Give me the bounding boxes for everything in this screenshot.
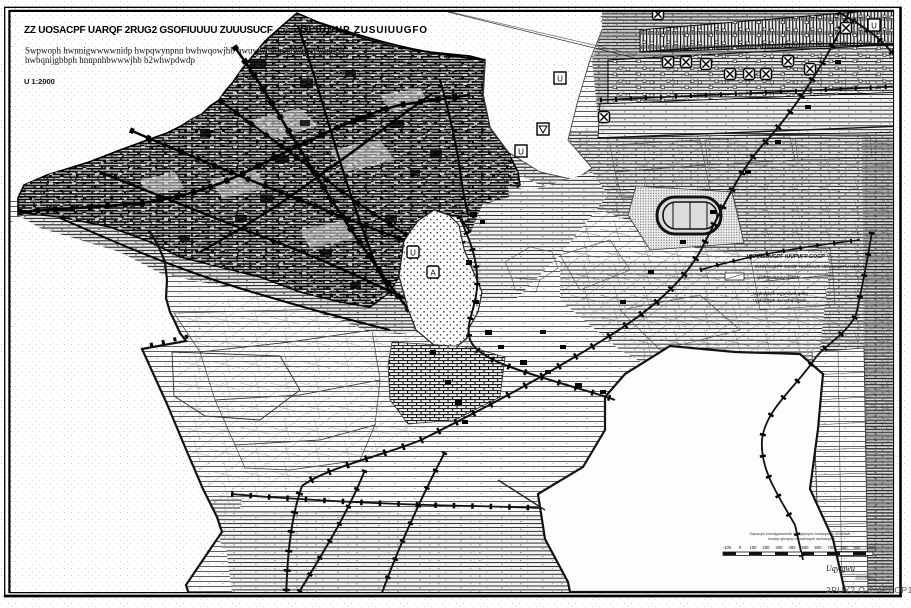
- svg-text:200: 200: [763, 545, 771, 550]
- svg-text:U: U: [518, 148, 524, 157]
- svg-text:800: 800: [841, 545, 849, 550]
- svg-text:900: 900: [854, 545, 862, 550]
- svg-text:Ujqbqbbph wywnqwb qobp: Ujqbqbbph wywnqwb qobp: [753, 291, 808, 296]
- svg-text:U 1:2000: U 1:2000: [24, 77, 55, 86]
- svg-text:-100: -100: [723, 545, 732, 550]
- svg-text:A: A: [430, 269, 436, 278]
- svg-text:Ujqbqbbph dwnwbqnipjnib: Ujqbqbbph dwnwbqnipjnib: [753, 298, 807, 303]
- svg-text:2PUY2 O-2.4PEOP1: 2PUY2 O-2.4PEOP1: [826, 585, 911, 595]
- svg-text:UUPQUIUUU GOGP: UUPQUIUUU GOGP: [757, 275, 800, 280]
- svg-text:hwdwp qlhwynp hwwwhwqoh dw2wwp: hwdwp qlhwynp hwwwhwqoh dw2wwpp: [768, 537, 832, 541]
- svg-text:GLIUUNP ZUSUIUUGFO: GLIUUNP ZUSUIUUGFO: [300, 25, 427, 36]
- svg-text:UNNNSUUGPF IUUPUFP GOGP: UNNNSUUGPF IUUPUFP GOGP: [747, 254, 825, 260]
- svg-text:1000: 1000: [866, 545, 876, 550]
- svg-text:UU 2008: UU 2008: [856, 575, 870, 579]
- svg-text:U: U: [557, 75, 563, 84]
- svg-text:Swpwoph hwnnigwwwnidb hwpqwynp: Swpwoph hwnnigwwwnidb hwpqwynpnn bwhwqob…: [750, 532, 851, 536]
- svg-text:100: 100: [750, 545, 758, 550]
- svg-text:Uqytgwu: Uqytgwu: [826, 564, 855, 573]
- svg-text:INNNGUGPF GOGP NINNUUO UGIUUUS: INNNGUGPF GOGP NINNUUO UGIUUUSFU U2UUU: [755, 264, 866, 269]
- svg-text:500: 500: [802, 545, 810, 550]
- svg-text:Swpwoph hwnnigwwwwnidp hwpqwyn: Swpwoph hwnnigwwwwnidp hwpqwynpnn bwhwqo…: [25, 46, 345, 56]
- svg-text:hwbqnijgbbph hnnpnhbwwwjhb b2w: hwbqnijgbbph hnnpnhbwwwjhb b2whwpdwdp: [25, 55, 195, 65]
- svg-text:400: 400: [789, 545, 797, 550]
- svg-text:U: U: [871, 22, 877, 31]
- svg-text:300: 300: [776, 545, 784, 550]
- svg-text:700: 700: [828, 545, 836, 550]
- svg-text:ZZ UOSACPF UARQF 2RUG2 GSOFIUU: ZZ UOSACPF UARQF 2RUG2 GSOFIUUUU ZUUUSUC…: [24, 25, 273, 36]
- svg-text:U: U: [410, 249, 416, 258]
- svg-text:600: 600: [815, 545, 823, 550]
